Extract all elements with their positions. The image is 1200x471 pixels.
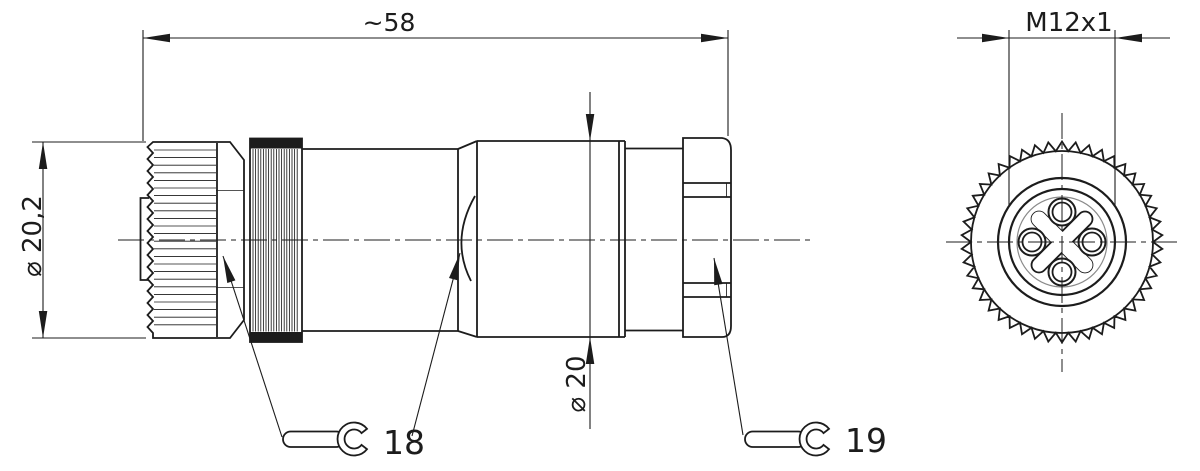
seal-parting-arc xyxy=(461,196,475,281)
leader-line-body-18 xyxy=(412,253,460,436)
wrench-18-icon xyxy=(283,432,344,448)
dim-arrow xyxy=(1115,34,1142,43)
thread-size-dimension-label: M12x1 xyxy=(1025,8,1112,38)
wrench-size-19-label: 19 xyxy=(845,421,887,460)
hex-nut-outline xyxy=(683,138,731,337)
lock-ring-top-band xyxy=(250,139,302,149)
dim-arrow xyxy=(39,311,48,338)
dim-arrow xyxy=(701,34,728,43)
wrench-size-18-label: 18 xyxy=(383,423,425,462)
technical-drawing-canvas: ~58 M12x1 ⌀ 20,2 ⌀ 20 18 19 xyxy=(0,0,1200,471)
wrench-19-icon xyxy=(745,432,806,448)
overall-length-dimension-label: ~58 xyxy=(363,8,416,37)
body-chamfer xyxy=(458,331,477,337)
wrench-18-icon xyxy=(338,423,367,456)
m12-connector-drawing: ~58 M12x1 ⌀ 20,2 ⌀ 20 18 19 xyxy=(0,0,1200,471)
body-chamfer xyxy=(458,141,477,149)
dim-arrow xyxy=(143,34,170,43)
dim-arrow xyxy=(982,34,1009,43)
wrench-19-icon xyxy=(800,423,829,456)
body-diameter-dimension-label: ⌀ 20 xyxy=(562,355,592,412)
front-diameter-dimension-label: ⌀ 20,2 xyxy=(18,195,48,277)
lock-ring-bottom-band xyxy=(250,332,302,342)
dim-arrow xyxy=(39,142,48,169)
dim-arrow xyxy=(586,114,595,141)
